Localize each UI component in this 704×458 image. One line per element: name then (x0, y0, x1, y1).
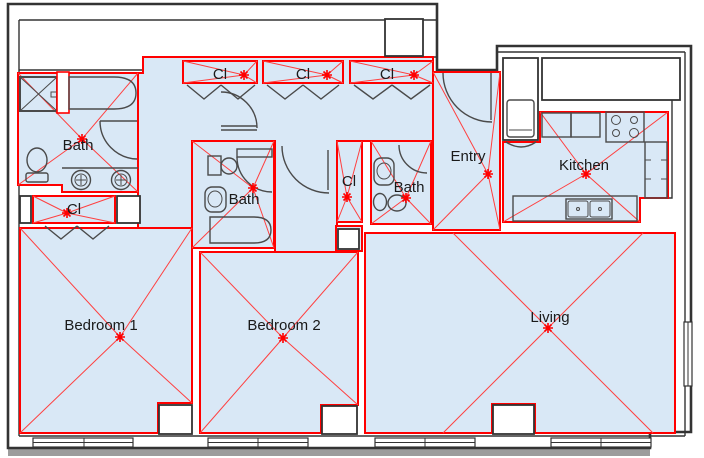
refrigerator (503, 58, 538, 140)
window-living-right (684, 322, 692, 386)
shaft-block (385, 19, 423, 56)
wall-stub (57, 72, 69, 113)
wall-pier-right (117, 196, 140, 223)
column-living (493, 405, 534, 434)
wall-pier-left (20, 196, 31, 223)
label-entry: Entry (450, 148, 486, 165)
window-bedroom-2 (208, 438, 308, 447)
column-hall (338, 229, 359, 249)
label-bedroom-1: Bedroom 1 (64, 317, 137, 334)
label-bath-3: Bath (394, 179, 425, 196)
exterior-ground-band (8, 449, 650, 456)
floor-plan-svg: Bath Cl Cl Cl Cl Bath Cl Bath Entry Kitc… (0, 0, 704, 458)
kitchen-upper-counter (542, 58, 680, 100)
label-closet-vanity: Cl (67, 201, 81, 218)
label-bedroom-2: Bedroom 2 (247, 317, 320, 334)
label-closet-hall: Cl (342, 173, 356, 190)
label-closet-top-2: Cl (296, 66, 310, 83)
column-bedroom-1 (159, 405, 192, 434)
label-closet-top-3: Cl (380, 66, 394, 83)
label-kitchen: Kitchen (559, 157, 609, 174)
room-living (365, 233, 675, 433)
window-living-2 (551, 438, 651, 447)
column-bedroom-2 (322, 406, 357, 434)
window-bedroom-1 (33, 438, 133, 447)
window-living-1 (375, 438, 475, 447)
label-bath-2: Bath (229, 191, 260, 208)
floor-plan-page: Bath Cl Cl Cl Cl Bath Cl Bath Entry Kitc… (0, 0, 704, 458)
label-closet-top-1: Cl (213, 66, 227, 83)
label-living: Living (530, 309, 569, 326)
label-bath-1: Bath (63, 137, 94, 154)
